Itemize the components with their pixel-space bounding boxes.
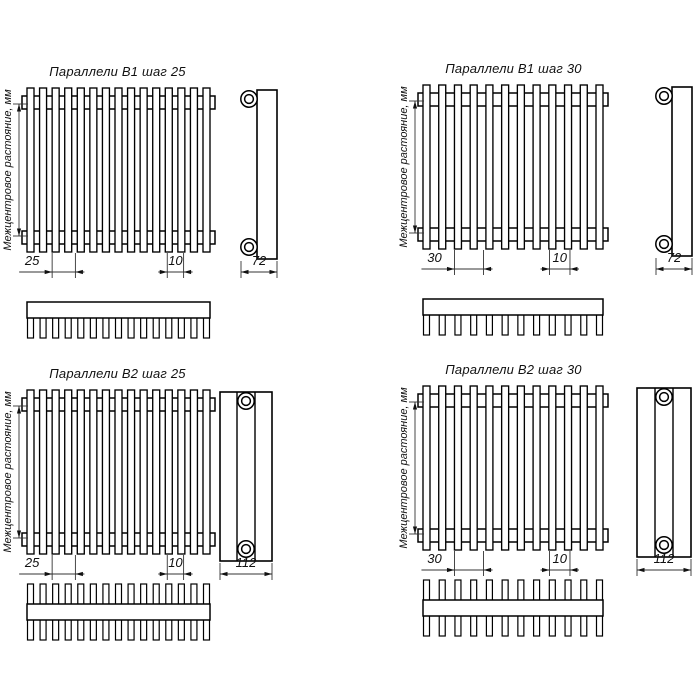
panel-parallels-b1-step25: Параллели В1 шаг 25 Межцентровое растоян… bbox=[0, 50, 310, 350]
radiator-drawing-b2-step30 bbox=[396, 348, 700, 648]
step-dimension-value: 30 bbox=[419, 551, 449, 566]
depth-dimension-value: 112 bbox=[644, 551, 684, 566]
panel-parallels-b2-step25: Параллели В2 шаг 25 Межцентровое растоян… bbox=[0, 352, 310, 652]
drawing-sheet: Параллели В1 шаг 25 Межцентровое растоян… bbox=[0, 0, 700, 700]
center-distance-label: Межцентровое растояние, мм bbox=[2, 391, 14, 552]
step-dimension-value: 25 bbox=[17, 253, 47, 268]
tube-width-dimension-value: 10 bbox=[160, 253, 190, 268]
radiator-drawing-b2-step25 bbox=[0, 352, 310, 652]
center-distance-label: Межцентровое растояние, мм bbox=[398, 387, 410, 548]
center-distance-label: Межцентровое растояние, мм bbox=[2, 89, 14, 250]
tube-width-dimension-value: 10 bbox=[160, 555, 190, 570]
radiator-drawing-b1-step30 bbox=[396, 47, 700, 347]
tube-width-dimension-value: 10 bbox=[545, 250, 575, 265]
step-dimension-value: 25 bbox=[17, 555, 47, 570]
tube-width-dimension-value: 10 bbox=[545, 551, 575, 566]
radiator-drawing-b1-step25 bbox=[0, 50, 310, 350]
panel-parallels-b2-step30: Параллели В2 шаг 30 Межцентровое растоян… bbox=[396, 348, 700, 648]
panel-title: Параллели В2 шаг 25 bbox=[5, 366, 230, 381]
panel-parallels-b1-step30: Параллели В1 шаг 30 Межцентровое растоян… bbox=[396, 47, 700, 347]
depth-dimension-value: 112 bbox=[226, 555, 266, 570]
center-distance-label: Межцентровое растояние, мм bbox=[398, 86, 410, 247]
panel-title: Параллели В1 шаг 30 bbox=[401, 61, 626, 76]
depth-dimension-value: 72 bbox=[239, 253, 279, 268]
step-dimension-value: 30 bbox=[419, 250, 449, 265]
depth-dimension-value: 72 bbox=[654, 250, 694, 265]
panel-title: Параллели В1 шаг 25 bbox=[5, 64, 230, 79]
panel-title: Параллели В2 шаг 30 bbox=[401, 362, 626, 377]
